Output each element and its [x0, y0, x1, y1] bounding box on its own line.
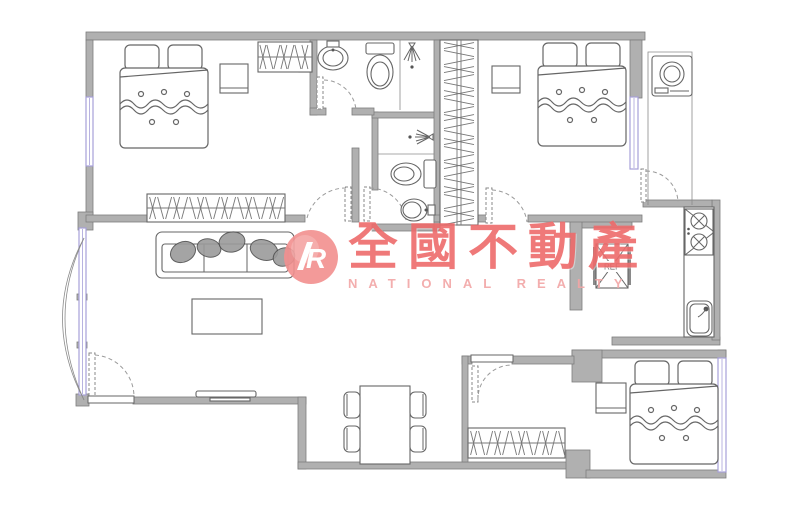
- floorplan-page: REF R 全國不動產 NATIONAL REALTY: [0, 0, 800, 506]
- door-swing-icon: [364, 187, 406, 221]
- nightstand-icon: [220, 64, 248, 93]
- sofa-icon: [156, 230, 297, 278]
- door-swing-icon: [317, 77, 356, 110]
- shower-head-icon: [408, 130, 433, 144]
- chair-icon: [344, 392, 360, 418]
- stove-icon: [685, 209, 713, 255]
- fridge-label: REF: [604, 263, 620, 272]
- window-icon: [86, 97, 93, 166]
- washbasin-icon: [401, 199, 435, 221]
- kitchen-sink-icon: [687, 301, 712, 336]
- dining-table-icon: [360, 386, 410, 464]
- coffee-table-icon: [192, 299, 262, 334]
- window-icon: [79, 228, 86, 395]
- door-swing-icon: [486, 188, 527, 223]
- shower-head-icon: [404, 43, 420, 69]
- door-swing-icon: [307, 187, 351, 221]
- wardrobe-hangers-icon: [258, 42, 312, 72]
- nightstand-icon: [596, 383, 626, 413]
- door-swing-icon: [88, 353, 134, 403]
- wardrobe-hangers-icon: [440, 40, 478, 225]
- washing-machine-icon: [652, 56, 692, 96]
- washbasin-icon: [318, 41, 348, 70]
- chair-icon: [410, 426, 426, 452]
- nightstand-icon: [492, 66, 520, 93]
- chair-icon: [410, 392, 426, 418]
- door-swing-icon: [641, 169, 678, 202]
- double-bed-icon: [120, 45, 208, 148]
- wardrobe-hangers-icon: [147, 194, 285, 222]
- double-bed-icon: [630, 361, 718, 464]
- double-bed-icon: [538, 43, 626, 146]
- window-icon: [630, 97, 638, 169]
- chair-icon: [344, 426, 360, 452]
- door-swing-icon: [471, 355, 513, 402]
- toilet-icon: [366, 43, 394, 89]
- floorplan-drawing: REF: [0, 0, 800, 506]
- wardrobe-hangers-icon: [468, 428, 565, 458]
- toilet-icon: [391, 160, 436, 188]
- window-icon: [718, 358, 726, 472]
- refrigerator-icon: REF: [593, 244, 631, 288]
